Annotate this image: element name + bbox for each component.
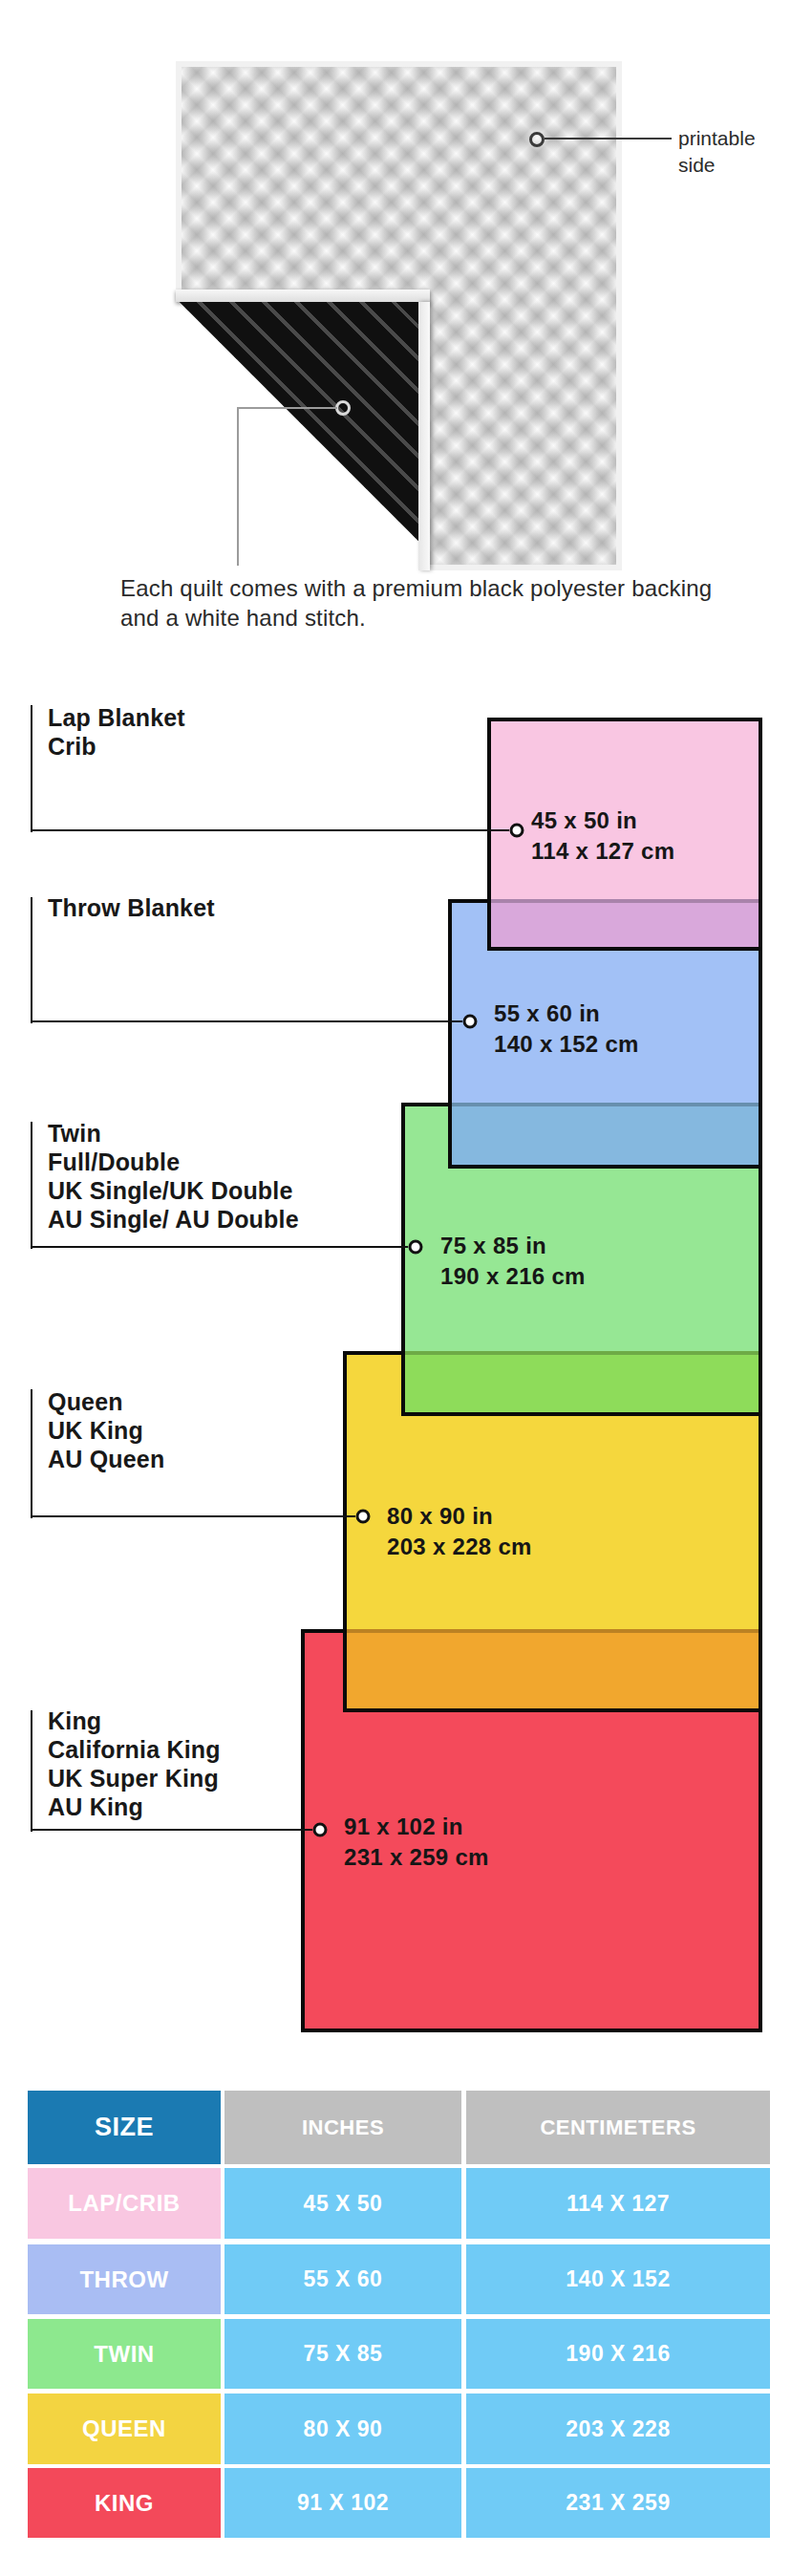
- size-text-lap-crib: 45 x 50 in 114 x 127 cm: [531, 805, 674, 867]
- printable-side-label: printable side: [678, 125, 756, 179]
- label-line: UK Super King: [48, 1764, 221, 1792]
- size-inches: 80 x 90 in: [387, 1501, 532, 1532]
- leader-dot-twin: [409, 1240, 423, 1255]
- table-row-throw-cm: 140 X 152: [466, 2244, 770, 2314]
- size-text-queen: 80 x 90 in 203 x 228 cm: [387, 1501, 532, 1562]
- table-row-queen-inches: 80 X 90: [224, 2394, 461, 2464]
- size-text-twin: 75 x 85 in 190 x 216 cm: [440, 1231, 586, 1292]
- backing-leader-line-horizontal: [238, 407, 337, 409]
- table-row-twin-size: TWIN: [28, 2319, 221, 2389]
- label-line: Full/Double: [48, 1148, 299, 1176]
- table-header-inches: INCHES: [224, 2091, 461, 2164]
- label-line: AU King: [48, 1792, 221, 1821]
- table-row-king-cm: 231 X 259: [466, 2468, 770, 2538]
- label-line: Twin: [48, 1119, 299, 1148]
- label-line: Crib: [48, 732, 185, 761]
- leader-hline-lap: [31, 829, 509, 831]
- table-row-throw-inches: 55 X 60: [224, 2244, 461, 2314]
- size-cm: 203 x 228 cm: [387, 1532, 532, 1562]
- label-queen: Queen UK King AU Queen: [48, 1387, 164, 1473]
- table-row-king-inches: 91 X 102: [224, 2468, 461, 2538]
- label-line: AU Single/ AU Double: [48, 1205, 299, 1234]
- label-line: Lap Blanket: [48, 703, 185, 732]
- size-inches: 75 x 85 in: [440, 1231, 586, 1261]
- backing-leader-line-vertical: [237, 407, 239, 566]
- label-line: UK King: [48, 1416, 164, 1445]
- leader-dot-queen: [356, 1510, 371, 1524]
- printable-side-marker: [529, 132, 545, 147]
- table-header-size: SIZE: [28, 2091, 221, 2164]
- label-line: AU Queen: [48, 1445, 164, 1473]
- overlap-throw-twin: [452, 1103, 759, 1165]
- leader-hline-king: [31, 1829, 312, 1831]
- table-row-lap-cm: 114 X 127: [466, 2168, 770, 2239]
- leader-hline-queen: [31, 1515, 355, 1517]
- table-row-throw-size: THROW: [28, 2244, 221, 2314]
- page: printable side Each quilt comes with a p…: [0, 0, 791, 2576]
- table-row-lap-inches: 45 X 50: [224, 2168, 461, 2239]
- size-inches: 45 x 50 in: [531, 805, 674, 836]
- label-line: King: [48, 1707, 221, 1735]
- leader-vline-lap: [31, 705, 32, 832]
- label-line: California King: [48, 1735, 221, 1764]
- leader-vline-throw: [31, 897, 32, 1023]
- table-header-centimeters: CENTIMETERS: [466, 2091, 770, 2164]
- size-inches: 55 x 60 in: [494, 998, 639, 1029]
- size-cm: 231 x 259 cm: [344, 1842, 489, 1873]
- overlap-lap-throw: [491, 899, 759, 947]
- leader-dot-king: [313, 1823, 328, 1837]
- size-text-king: 91 x 102 in 231 x 259 cm: [344, 1812, 489, 1873]
- size-inches: 91 x 102 in: [344, 1812, 489, 1842]
- size-text-throw: 55 x 60 in 140 x 152 cm: [494, 998, 639, 1060]
- label-twin: Twin Full/Double UK Single/UK Double AU …: [48, 1119, 299, 1234]
- leader-hline-throw: [31, 1020, 462, 1022]
- size-cm: 140 x 152 cm: [494, 1029, 639, 1060]
- printable-side-label-line1: printable: [678, 125, 756, 152]
- overlap-queen-king: [347, 1629, 759, 1708]
- table-row-queen-size: QUEEN: [28, 2394, 221, 2464]
- size-cm: 114 x 127 cm: [531, 836, 674, 867]
- printable-side-leader-line: [545, 138, 672, 140]
- backing-caption: Each quilt comes with a premium black po…: [120, 573, 732, 633]
- leader-dot-throw: [463, 1015, 478, 1029]
- printable-side-label-line2: side: [678, 152, 756, 179]
- label-line: Throw Blanket: [48, 893, 215, 922]
- leader-vline-king: [31, 1710, 32, 1832]
- label-lap-crib: Lap Blanket Crib: [48, 703, 185, 761]
- label-line: UK Single/UK Double: [48, 1176, 299, 1205]
- size-cm: 190 x 216 cm: [440, 1261, 586, 1292]
- quilt-fold-binding: [418, 302, 430, 570]
- overlap-twin-queen: [405, 1351, 759, 1412]
- backing-marker: [335, 400, 351, 416]
- leader-vline-twin: [31, 1122, 32, 1249]
- label-throw: Throw Blanket: [48, 893, 215, 922]
- table-row-queen-cm: 203 X 228: [466, 2394, 770, 2464]
- table-row-twin-cm: 190 X 216: [466, 2319, 770, 2389]
- label-king: King California King UK Super King AU Ki…: [48, 1707, 221, 1821]
- quilt-fold-crease: [176, 290, 430, 302]
- leader-hline-twin: [31, 1246, 408, 1248]
- table-row-lap-size: LAP/CRIB: [28, 2168, 221, 2239]
- label-line: Queen: [48, 1387, 164, 1416]
- leader-dot-lap: [510, 824, 524, 838]
- table-row-twin-inches: 75 X 85: [224, 2319, 461, 2389]
- size-table: SIZE INCHES CENTIMETERS LAP/CRIB 45 X 50…: [28, 2091, 770, 2538]
- table-row-king-size: KING: [28, 2468, 221, 2538]
- leader-vline-queen: [31, 1389, 32, 1518]
